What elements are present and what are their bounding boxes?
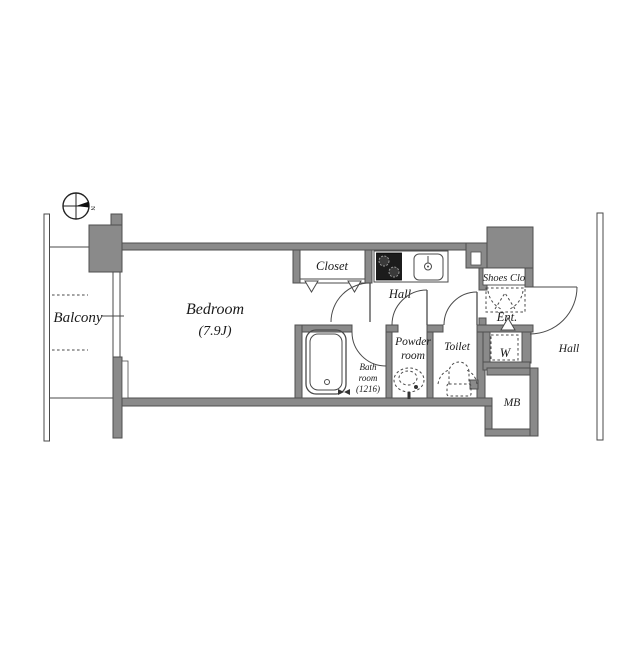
closet-label: Closet <box>316 259 348 273</box>
wall-top-left-stub <box>111 214 122 226</box>
hanger-icon <box>305 281 318 292</box>
sink-drain-dot <box>427 266 429 268</box>
hall-inner-label: Hall <box>388 287 412 301</box>
bedroom-label: Bedroom <box>186 301 244 318</box>
meter-box-label: MB <box>503 397 521 409</box>
bathtub-inner-line <box>310 334 342 390</box>
bathroom-label-line3: (1216) <box>356 384 380 394</box>
bedroom-door-arc <box>331 283 370 322</box>
washer-label: W <box>500 346 512 360</box>
stove-burner-icon <box>389 267 399 277</box>
wall-mb-top <box>487 368 532 375</box>
shoes-closet-area: Shoes Clo <box>483 268 525 285</box>
wall-mb-left <box>485 406 492 431</box>
powder-sink-stand <box>408 392 411 399</box>
stove-burner-icon <box>379 256 389 266</box>
powder-room-label-line2: room <box>401 350 425 362</box>
wall-stub-powder-toilet <box>427 325 443 332</box>
bathroom-label-line1: Bath <box>360 362 377 372</box>
toilet-tank-icon <box>447 384 471 396</box>
balcony-label: Balcony <box>53 310 102 326</box>
walls <box>89 214 538 438</box>
wall-top <box>122 243 490 250</box>
wall-bath-powder-divider <box>386 332 392 398</box>
bathtub-drain <box>325 380 330 385</box>
wall-stub-bath-powder <box>386 325 398 332</box>
wall-entrance-right-upper <box>525 268 533 287</box>
wall-closet-right <box>365 250 372 283</box>
compass-icon: N <box>63 193 96 219</box>
kitchen-area <box>374 251 448 282</box>
shoes-closet-label: Shoes Clo <box>483 273 525 284</box>
wall-pipe-notch <box>471 252 481 265</box>
outer-hall-area: Hall <box>558 213 603 440</box>
corridor-wall <box>597 213 603 440</box>
wall-mb-right <box>530 368 538 436</box>
bath-faucet-icon <box>338 389 344 395</box>
toilet-label: Toilet <box>444 341 471 353</box>
powder-sink-basin <box>399 371 417 385</box>
powder-room-area: Powder room <box>392 290 431 399</box>
wall-closet-left <box>293 250 300 283</box>
shoe-cabinet-arc <box>510 291 523 309</box>
powder-sink-icon <box>394 368 424 392</box>
compass-north-label: N <box>89 206 96 211</box>
toilet-door-arc <box>444 292 477 325</box>
balcony-window <box>102 272 124 357</box>
wall-washer-left <box>483 332 490 363</box>
closet-area: Closet <box>300 259 365 292</box>
window-glass <box>113 272 120 357</box>
toilet-bowl-icon <box>449 362 469 384</box>
powder-faucet-dot <box>414 385 418 389</box>
entrance-door-arc <box>530 287 577 334</box>
wall-top-left-block <box>89 225 122 272</box>
bathroom-area: Bath room (1216) <box>306 330 386 395</box>
bedroom-area: Bedroom (7.9J) <box>186 301 244 339</box>
wall-top-right-block <box>487 227 533 268</box>
bath-faucet-icon <box>344 389 350 395</box>
powder-room-label-line1: Powder <box>394 336 431 348</box>
wall-washer-right <box>522 332 531 363</box>
bedroom-size-label: (7.9J) <box>198 324 231 339</box>
shoe-cabinet-icon <box>486 288 525 312</box>
shoe-cabinet-arc <box>488 291 501 309</box>
hall-outer-label: Hall <box>558 343 579 355</box>
wall-bath-left <box>295 325 302 398</box>
toilet-side-arc <box>438 370 449 384</box>
washer-area: W <box>491 335 518 360</box>
wall-slot-notch <box>122 361 128 398</box>
wall-balcony-lower <box>113 357 122 438</box>
floorplan-page: N Balcony <box>0 0 640 640</box>
wall-bottom <box>113 398 492 406</box>
floorplan-drawing: N Balcony <box>0 0 640 640</box>
bath-door-arc <box>352 332 386 366</box>
shoe-cabinet-tent-mark <box>495 293 515 309</box>
bathroom-label-line2: room <box>359 373 378 383</box>
balcony-rail <box>44 214 50 441</box>
bedroom-door <box>331 283 370 322</box>
wall-bath-top <box>295 325 352 332</box>
